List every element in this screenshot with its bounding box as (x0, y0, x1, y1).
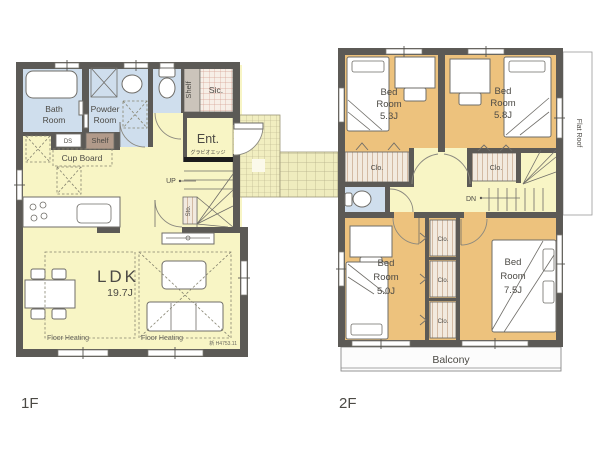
bath-room-label2: Room (43, 115, 66, 125)
powder-room-label2: Room (94, 115, 117, 125)
closet-col2-label: Clo. (438, 278, 449, 284)
shelf-top-label: Shelf (184, 81, 193, 99)
porch-deck (280, 152, 338, 197)
floor2-title: 2F (339, 395, 357, 412)
sic-label: Sic. (209, 85, 223, 95)
closet-col3-label: Clo. (438, 319, 449, 325)
bed1-label: Bed (381, 87, 398, 98)
floorplan-drawing: Bath Room Powder Room Shelf Sic. Ent. グラ… (0, 0, 600, 449)
floor-heating-right-label: Floor Heating (141, 335, 183, 342)
closet-bed1-label: Clo. (371, 165, 384, 172)
bed1-label2: Room (376, 99, 401, 110)
bed2-size: 5.8J (494, 110, 512, 121)
bath-room-label: Bath (45, 104, 63, 114)
shelf-mid-label: Shelf (91, 136, 109, 145)
bed4-symbol (492, 240, 556, 332)
entrance-step-edge (184, 157, 233, 162)
closet-bed2-label: Clo. (490, 165, 503, 172)
ldk-label: LDK (97, 267, 139, 286)
powder-sink-symbol (122, 75, 142, 93)
powder-room-label: Powder (91, 104, 120, 114)
ldk-note-label: 新 H4753.11 (209, 340, 237, 347)
counter-window (162, 233, 214, 244)
toilet-1f-symbol (159, 68, 175, 98)
floor1-plan: Bath Room Powder Room Shelf Sic. Ent. グラ… (14, 60, 338, 412)
storage-label: Sto. (186, 205, 192, 216)
bed3-label2: Room (373, 272, 398, 283)
bed2-label: Bed (495, 86, 512, 97)
bed4-label2: Room (500, 271, 525, 282)
floor2-plan: Bed Room 5.3J Bed Room 5.8J Bed Room 5.0… (336, 46, 592, 412)
floor-heating-left-label: Floor Heating (47, 335, 89, 342)
closet-col1-label: Clo. (438, 237, 449, 243)
bed4-label: Bed (505, 257, 522, 268)
entrance-door-leaf (234, 123, 263, 129)
floor1-title: 1F (21, 395, 39, 412)
cupboard-label: Cup Board (62, 153, 103, 163)
porch-step (252, 159, 265, 172)
up-label: UP (166, 178, 176, 185)
dn-label: DN (466, 196, 476, 203)
floorplan-page: Bath Room Powder Room Shelf Sic. Ent. グラ… (0, 0, 600, 449)
ds-label: DS (64, 139, 72, 145)
bed2-symbol (504, 57, 551, 137)
balcony-label: Balcony (432, 354, 470, 366)
bed4-size: 7.5J (504, 285, 522, 296)
bed2-label2: Room (490, 98, 515, 109)
flat-roof-label: Flat Roof (575, 119, 582, 147)
entrance-label: Ent. (197, 132, 219, 146)
stairwell-2f (516, 148, 556, 212)
kitchen-counter (23, 197, 120, 227)
bed3-label: Bed (378, 258, 395, 269)
ldk-size-label: 19.7J (107, 287, 133, 299)
entrance-note-label: グラビオエッジ (190, 149, 225, 156)
bed1-size: 5.3J (380, 111, 398, 122)
toilet-2f-symbol (345, 191, 371, 207)
bathtub-symbol (26, 71, 77, 98)
bed3-size: 5.0J (377, 286, 395, 297)
